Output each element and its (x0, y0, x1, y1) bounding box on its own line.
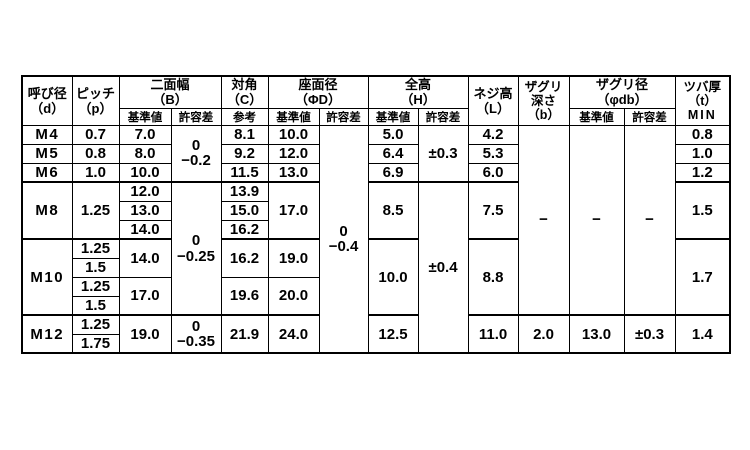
cell-m10-C-lower: 19.6 (221, 277, 268, 315)
cell-m6-L: 6.0 (468, 163, 518, 182)
cell-m5-D: 12.0 (268, 144, 319, 163)
cell-m8-C1: 13.9 (221, 182, 268, 201)
cell-m12-L: 11.0 (468, 315, 518, 353)
tolerance-line: −0.35 (172, 334, 221, 349)
subheader-D-tolerance: 許容差 (319, 108, 368, 125)
cell-m4-B: 7.0 (119, 125, 171, 144)
flange-bolt-dimension-table: 呼び径 （d） ピッチ （p） 二面幅 （B） 対角 （C） 座面径 （ΦD） … (21, 75, 731, 354)
cell-m10-L: 8.8 (468, 239, 518, 315)
cell-m10-pitch4: 1.5 (72, 296, 119, 315)
cell-D-tolerance-all: 0 −0.4 (319, 125, 368, 353)
header-text: 対角 (222, 77, 268, 92)
tolerance-line: −0.4 (320, 239, 368, 254)
cell-db-std-empty-m4-m10: − (569, 125, 624, 315)
header-text: ツバ厚 (676, 80, 730, 94)
tolerance-line: −0.25 (172, 249, 221, 264)
cell-m10-nominal: M10 (22, 239, 72, 315)
header-text: （C） (222, 92, 268, 107)
cell-m10-pitch1: 1.25 (72, 239, 119, 258)
cell-m8-B3: 14.0 (119, 220, 171, 239)
header-text: 二面幅 (120, 77, 221, 92)
cell-m5-nominal: M5 (22, 144, 72, 163)
cell-m12-H: 12.5 (368, 315, 418, 353)
cell-m5-C: 9.2 (221, 144, 268, 163)
header-text: （d） (23, 101, 72, 116)
cell-m10-B-upper: 14.0 (119, 239, 171, 277)
cell-H-tolerance-m4-m6: ±0.3 (418, 125, 468, 182)
cell-m6-D: 13.0 (268, 163, 319, 182)
cell-m10-C-upper: 16.2 (221, 239, 268, 277)
cell-m12-pitch1: 1.25 (72, 315, 119, 334)
cell-m6-pitch: 1.0 (72, 163, 119, 182)
cell-m4-pitch: 0.7 (72, 125, 119, 144)
cell-m4-H: 5.0 (368, 125, 418, 144)
tolerance-line: −0.2 (172, 153, 221, 168)
cell-H-tolerance-m8-m12: ±0.4 (418, 182, 468, 353)
cell-m12-B: 19.0 (119, 315, 171, 353)
col-header-width-across-flats: 二面幅 （B） (119, 76, 221, 108)
cell-m12-db-std: 13.0 (569, 315, 624, 353)
cell-m8-C3: 16.2 (221, 220, 268, 239)
cell-m6-nominal: M6 (22, 163, 72, 182)
header-text: 座面径 (269, 77, 368, 92)
cell-m12-pitch2: 1.75 (72, 334, 119, 353)
header-text: （φdb） (570, 92, 675, 107)
cell-m12-D: 24.0 (268, 315, 319, 353)
col-header-across-corners: 対角 （C） (221, 76, 268, 108)
cell-B-tolerance-m8-m10: 0 −0.25 (171, 182, 221, 315)
subheader-C-reference: 参考 (221, 108, 268, 125)
cell-m6-H: 6.9 (368, 163, 418, 182)
col-header-counterbore-dia: ザグリ径 （φdb） (569, 76, 675, 108)
header-text: ザグリ径 (570, 77, 675, 92)
cell-m5-H: 6.4 (368, 144, 418, 163)
header-text: （p） (73, 101, 119, 116)
col-header-pitch: ピッチ （p） (72, 76, 119, 125)
cell-m10-D-upper: 19.0 (268, 239, 319, 277)
header-text: （H） (369, 92, 468, 107)
cell-m8-t: 1.5 (675, 182, 730, 239)
header-text: 呼び径 (23, 86, 72, 101)
cell-m10-pitch3: 1.25 (72, 277, 119, 296)
col-header-thread-height: ネジ高 （L） (468, 76, 518, 125)
header-text: （B） (120, 92, 221, 107)
cell-m4-nominal: M4 (22, 125, 72, 144)
header-text: ネジ高 (469, 86, 518, 101)
cell-m10-B-lower: 17.0 (119, 277, 171, 315)
cell-m8-H: 8.5 (368, 182, 418, 239)
tolerance-line: 0 (320, 224, 368, 239)
col-header-counterbore-depth: ザグリ 深さ （b） (518, 76, 569, 125)
header-text: （t） (676, 94, 730, 108)
cell-B-tolerance-m4-m6: 0 −0.2 (171, 125, 221, 182)
header-text: MIN (676, 108, 730, 122)
cell-m5-pitch: 0.8 (72, 144, 119, 163)
col-header-nominal-dia: 呼び径 （d） (22, 76, 72, 125)
cell-m6-t: 1.2 (675, 163, 730, 182)
cell-m10-t: 1.7 (675, 239, 730, 315)
cell-m8-B2: 13.0 (119, 201, 171, 220)
page-background: 呼び径 （d） ピッチ （p） 二面幅 （B） 対角 （C） 座面径 （ΦD） … (0, 0, 750, 450)
subheader-H-standard: 基準値 (368, 108, 418, 125)
header-text: ピッチ (73, 86, 119, 101)
subheader-B-tolerance: 許容差 (171, 108, 221, 125)
cell-m5-B: 8.0 (119, 144, 171, 163)
subheader-H-tolerance: 許容差 (418, 108, 468, 125)
cell-m10-D-lower: 20.0 (268, 277, 319, 315)
cell-m5-L: 5.3 (468, 144, 518, 163)
cell-m8-pitch: 1.25 (72, 182, 119, 239)
cell-m10-pitch2: 1.5 (72, 258, 119, 277)
cell-m4-D: 10.0 (268, 125, 319, 144)
cell-m4-C: 8.1 (221, 125, 268, 144)
cell-m8-D: 17.0 (268, 182, 319, 239)
cell-db-tol-empty-m4-m10: − (624, 125, 675, 315)
cell-m6-C: 11.5 (221, 163, 268, 182)
cell-b-empty-m4-m10: − (518, 125, 569, 315)
cell-m8-L: 7.5 (468, 182, 518, 239)
header-text: ザグリ (519, 80, 569, 94)
cell-m8-C2: 15.0 (221, 201, 268, 220)
cell-m8-B1: 12.0 (119, 182, 171, 201)
cell-m10-H: 10.0 (368, 239, 418, 315)
subheader-db-standard: 基準値 (569, 108, 624, 125)
cell-m6-B: 10.0 (119, 163, 171, 182)
header-text: （ΦD） (269, 92, 368, 107)
cell-m8-nominal: M8 (22, 182, 72, 239)
cell-m12-b: 2.0 (518, 315, 569, 353)
col-header-flange-thickness: ツバ厚 （t） MIN (675, 76, 730, 125)
header-text: （L） (469, 101, 518, 116)
cell-m12-db-tol: ±0.3 (624, 315, 675, 353)
subheader-D-standard: 基準値 (268, 108, 319, 125)
cell-m5-t: 1.0 (675, 144, 730, 163)
cell-m12-C: 21.9 (221, 315, 268, 353)
col-header-bearing-surface-dia: 座面径 （ΦD） (268, 76, 368, 108)
cell-m4-L: 4.2 (468, 125, 518, 144)
cell-m12-t: 1.4 (675, 315, 730, 353)
cell-B-tolerance-m12: 0 −0.35 (171, 315, 221, 353)
cell-m12-nominal: M12 (22, 315, 72, 353)
header-text: 深さ (519, 94, 569, 108)
subheader-B-standard: 基準値 (119, 108, 171, 125)
tolerance-line: 0 (172, 138, 221, 153)
header-text: 全高 (369, 77, 468, 92)
cell-m4-t: 0.8 (675, 125, 730, 144)
subheader-db-tolerance: 許容差 (624, 108, 675, 125)
tolerance-line: 0 (172, 319, 221, 334)
header-text: （b） (519, 108, 569, 122)
tolerance-line: 0 (172, 233, 221, 248)
col-header-overall-height: 全高 （H） (368, 76, 468, 108)
